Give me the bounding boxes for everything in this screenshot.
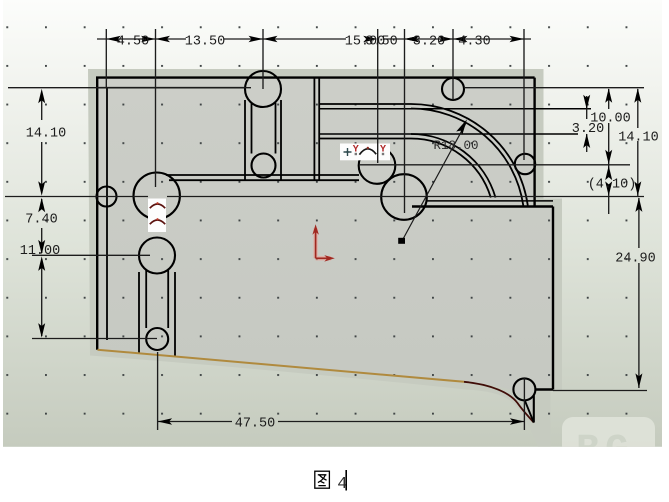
- svg-text:3.20: 3.20: [572, 122, 604, 137]
- svg-text:47.50: 47.50: [235, 417, 276, 432]
- svg-text:R18.00: R18.00: [433, 139, 478, 153]
- svg-text:BG: BG: [576, 429, 634, 474]
- svg-text:13.50: 13.50: [185, 34, 226, 49]
- svg-text:3.50: 3.50: [365, 34, 397, 49]
- svg-text:14.10: 14.10: [618, 130, 659, 145]
- svg-text:7.40: 7.40: [25, 213, 57, 228]
- svg-text:11.00: 11.00: [20, 244, 61, 259]
- svg-text:4.50: 4.50: [117, 34, 149, 49]
- svg-text:14.10: 14.10: [26, 127, 67, 142]
- svg-text:3.20: 3.20: [413, 34, 445, 49]
- svg-text:(4.10): (4.10): [588, 178, 637, 193]
- svg-text:24.90: 24.90: [615, 251, 656, 266]
- svg-text:4.30: 4.30: [458, 34, 490, 49]
